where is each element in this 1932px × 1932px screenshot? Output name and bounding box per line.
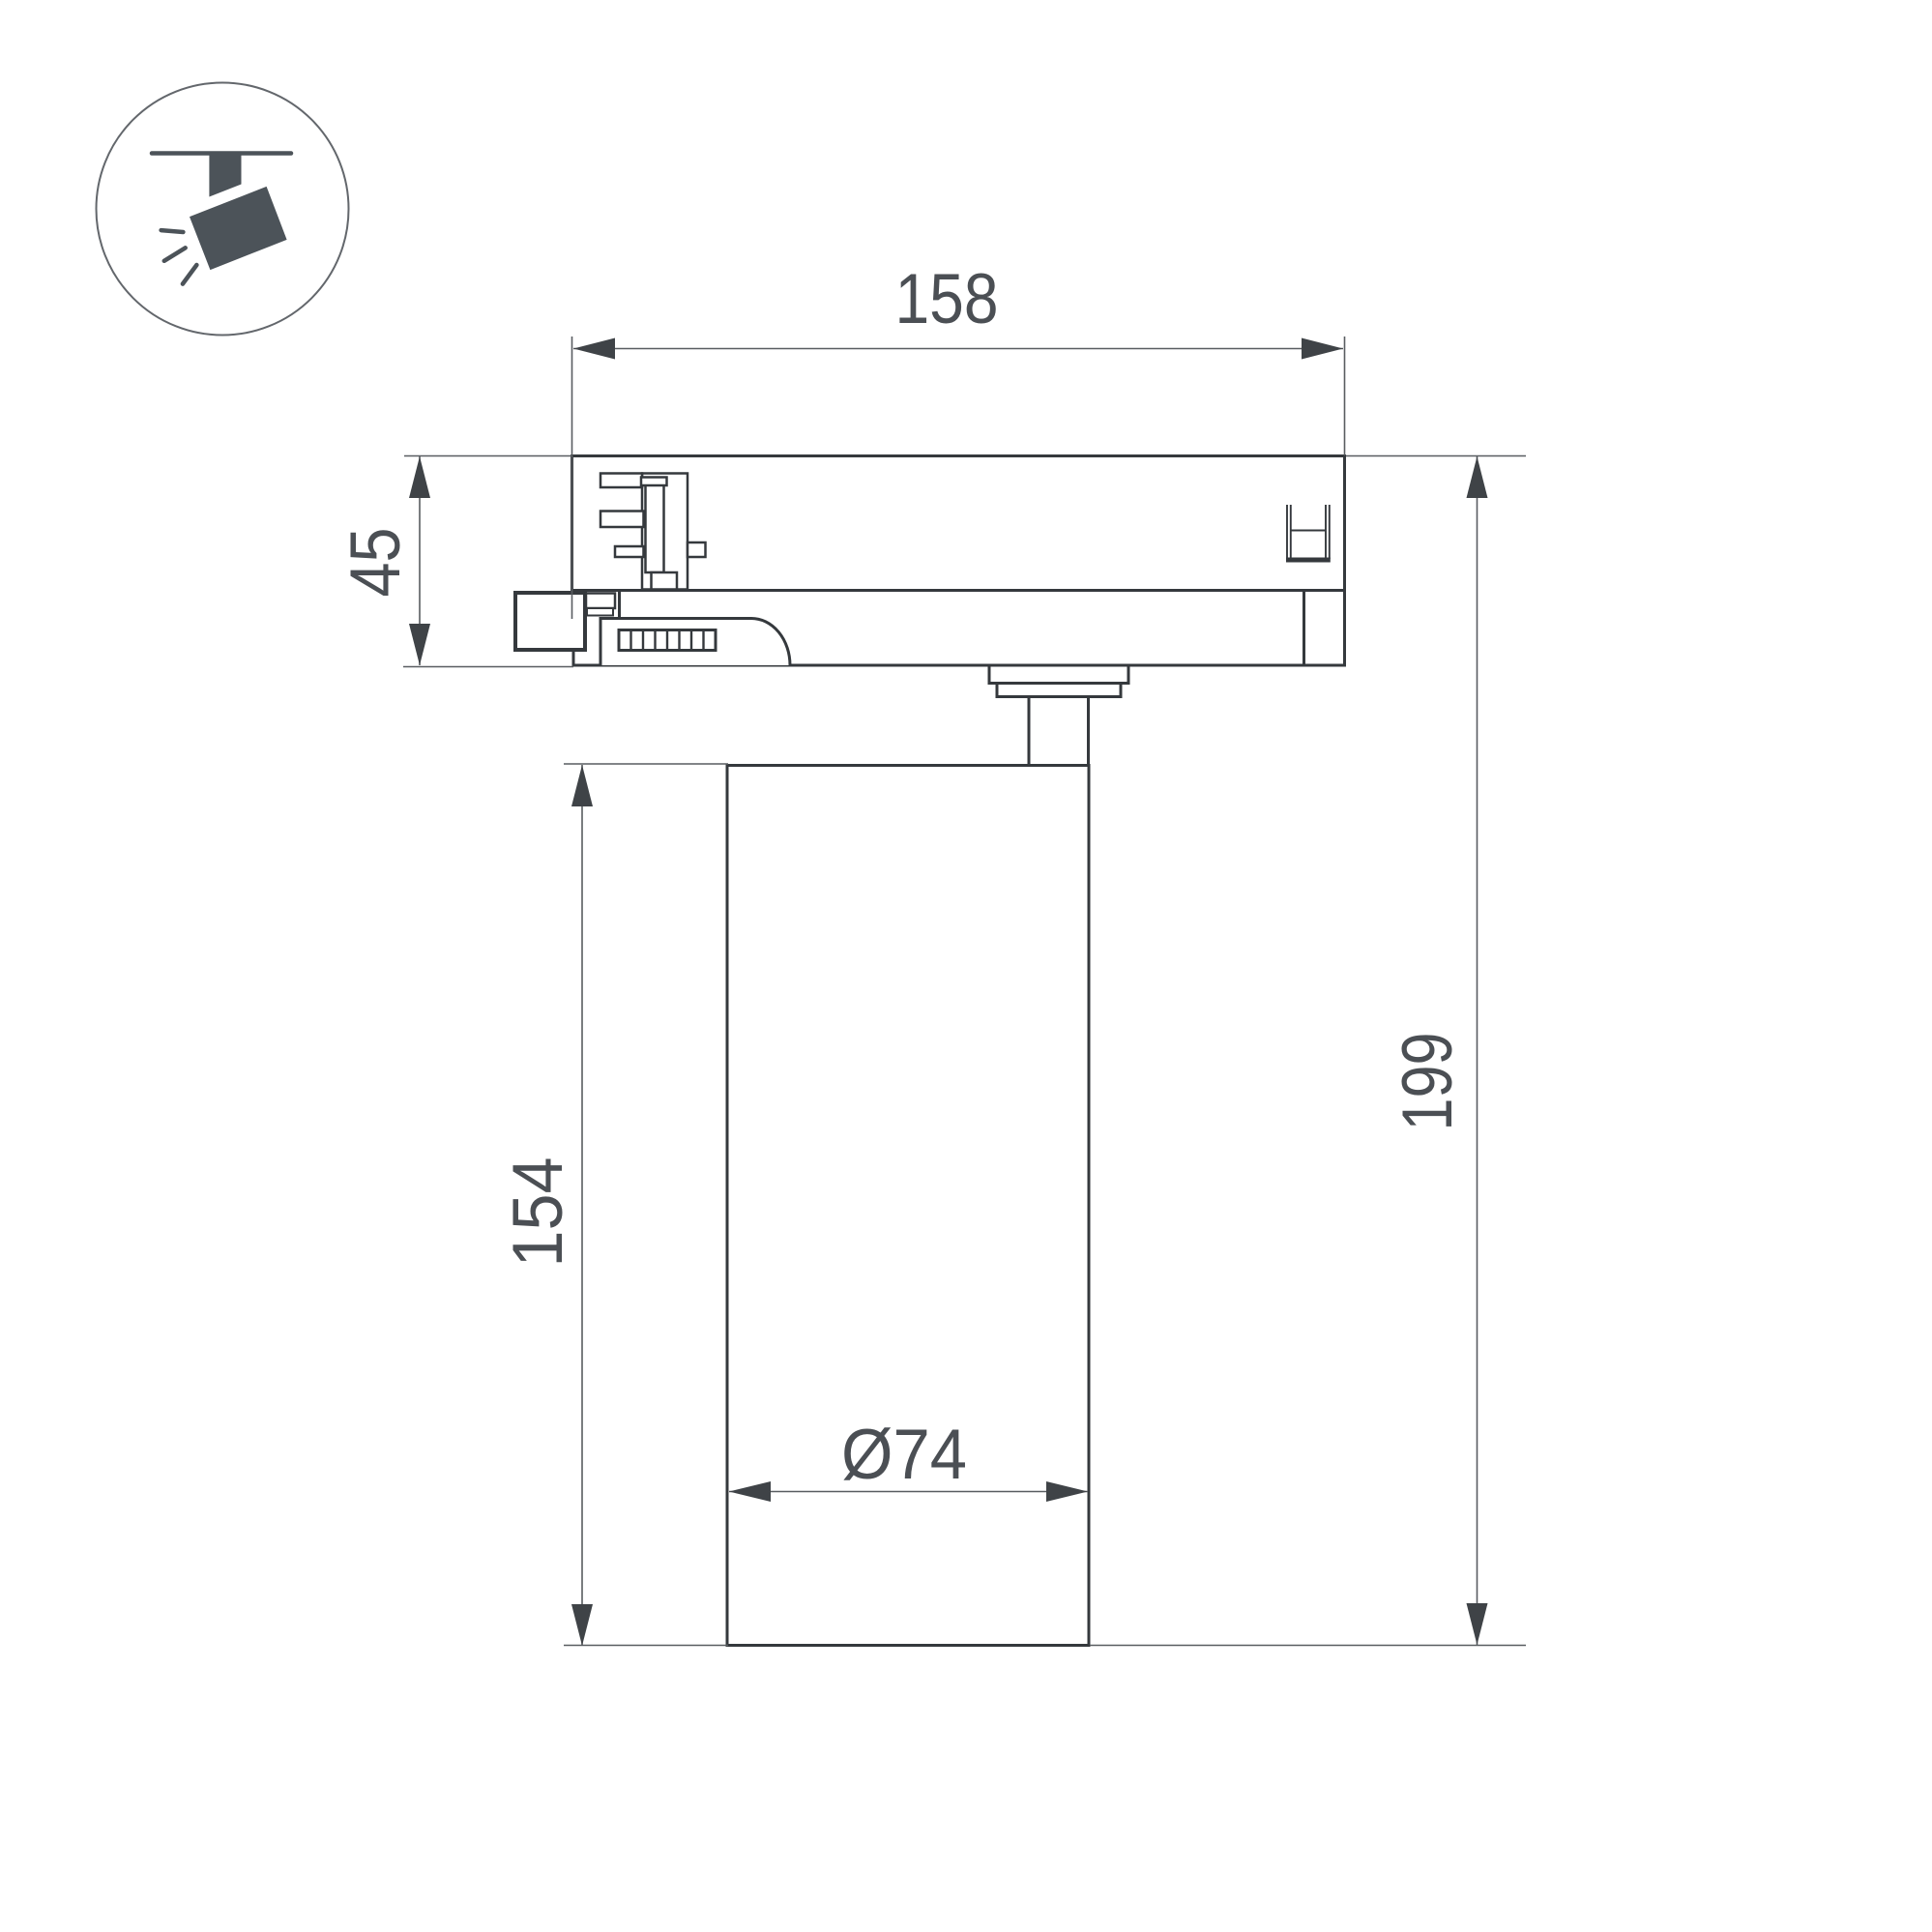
svg-text:199: 199 [1389,1033,1467,1131]
svg-text:158: 158 [895,260,999,338]
svg-text:45: 45 [337,528,415,598]
svg-text:Ø74: Ø74 [841,1416,967,1494]
svg-text:154: 154 [499,1157,577,1268]
